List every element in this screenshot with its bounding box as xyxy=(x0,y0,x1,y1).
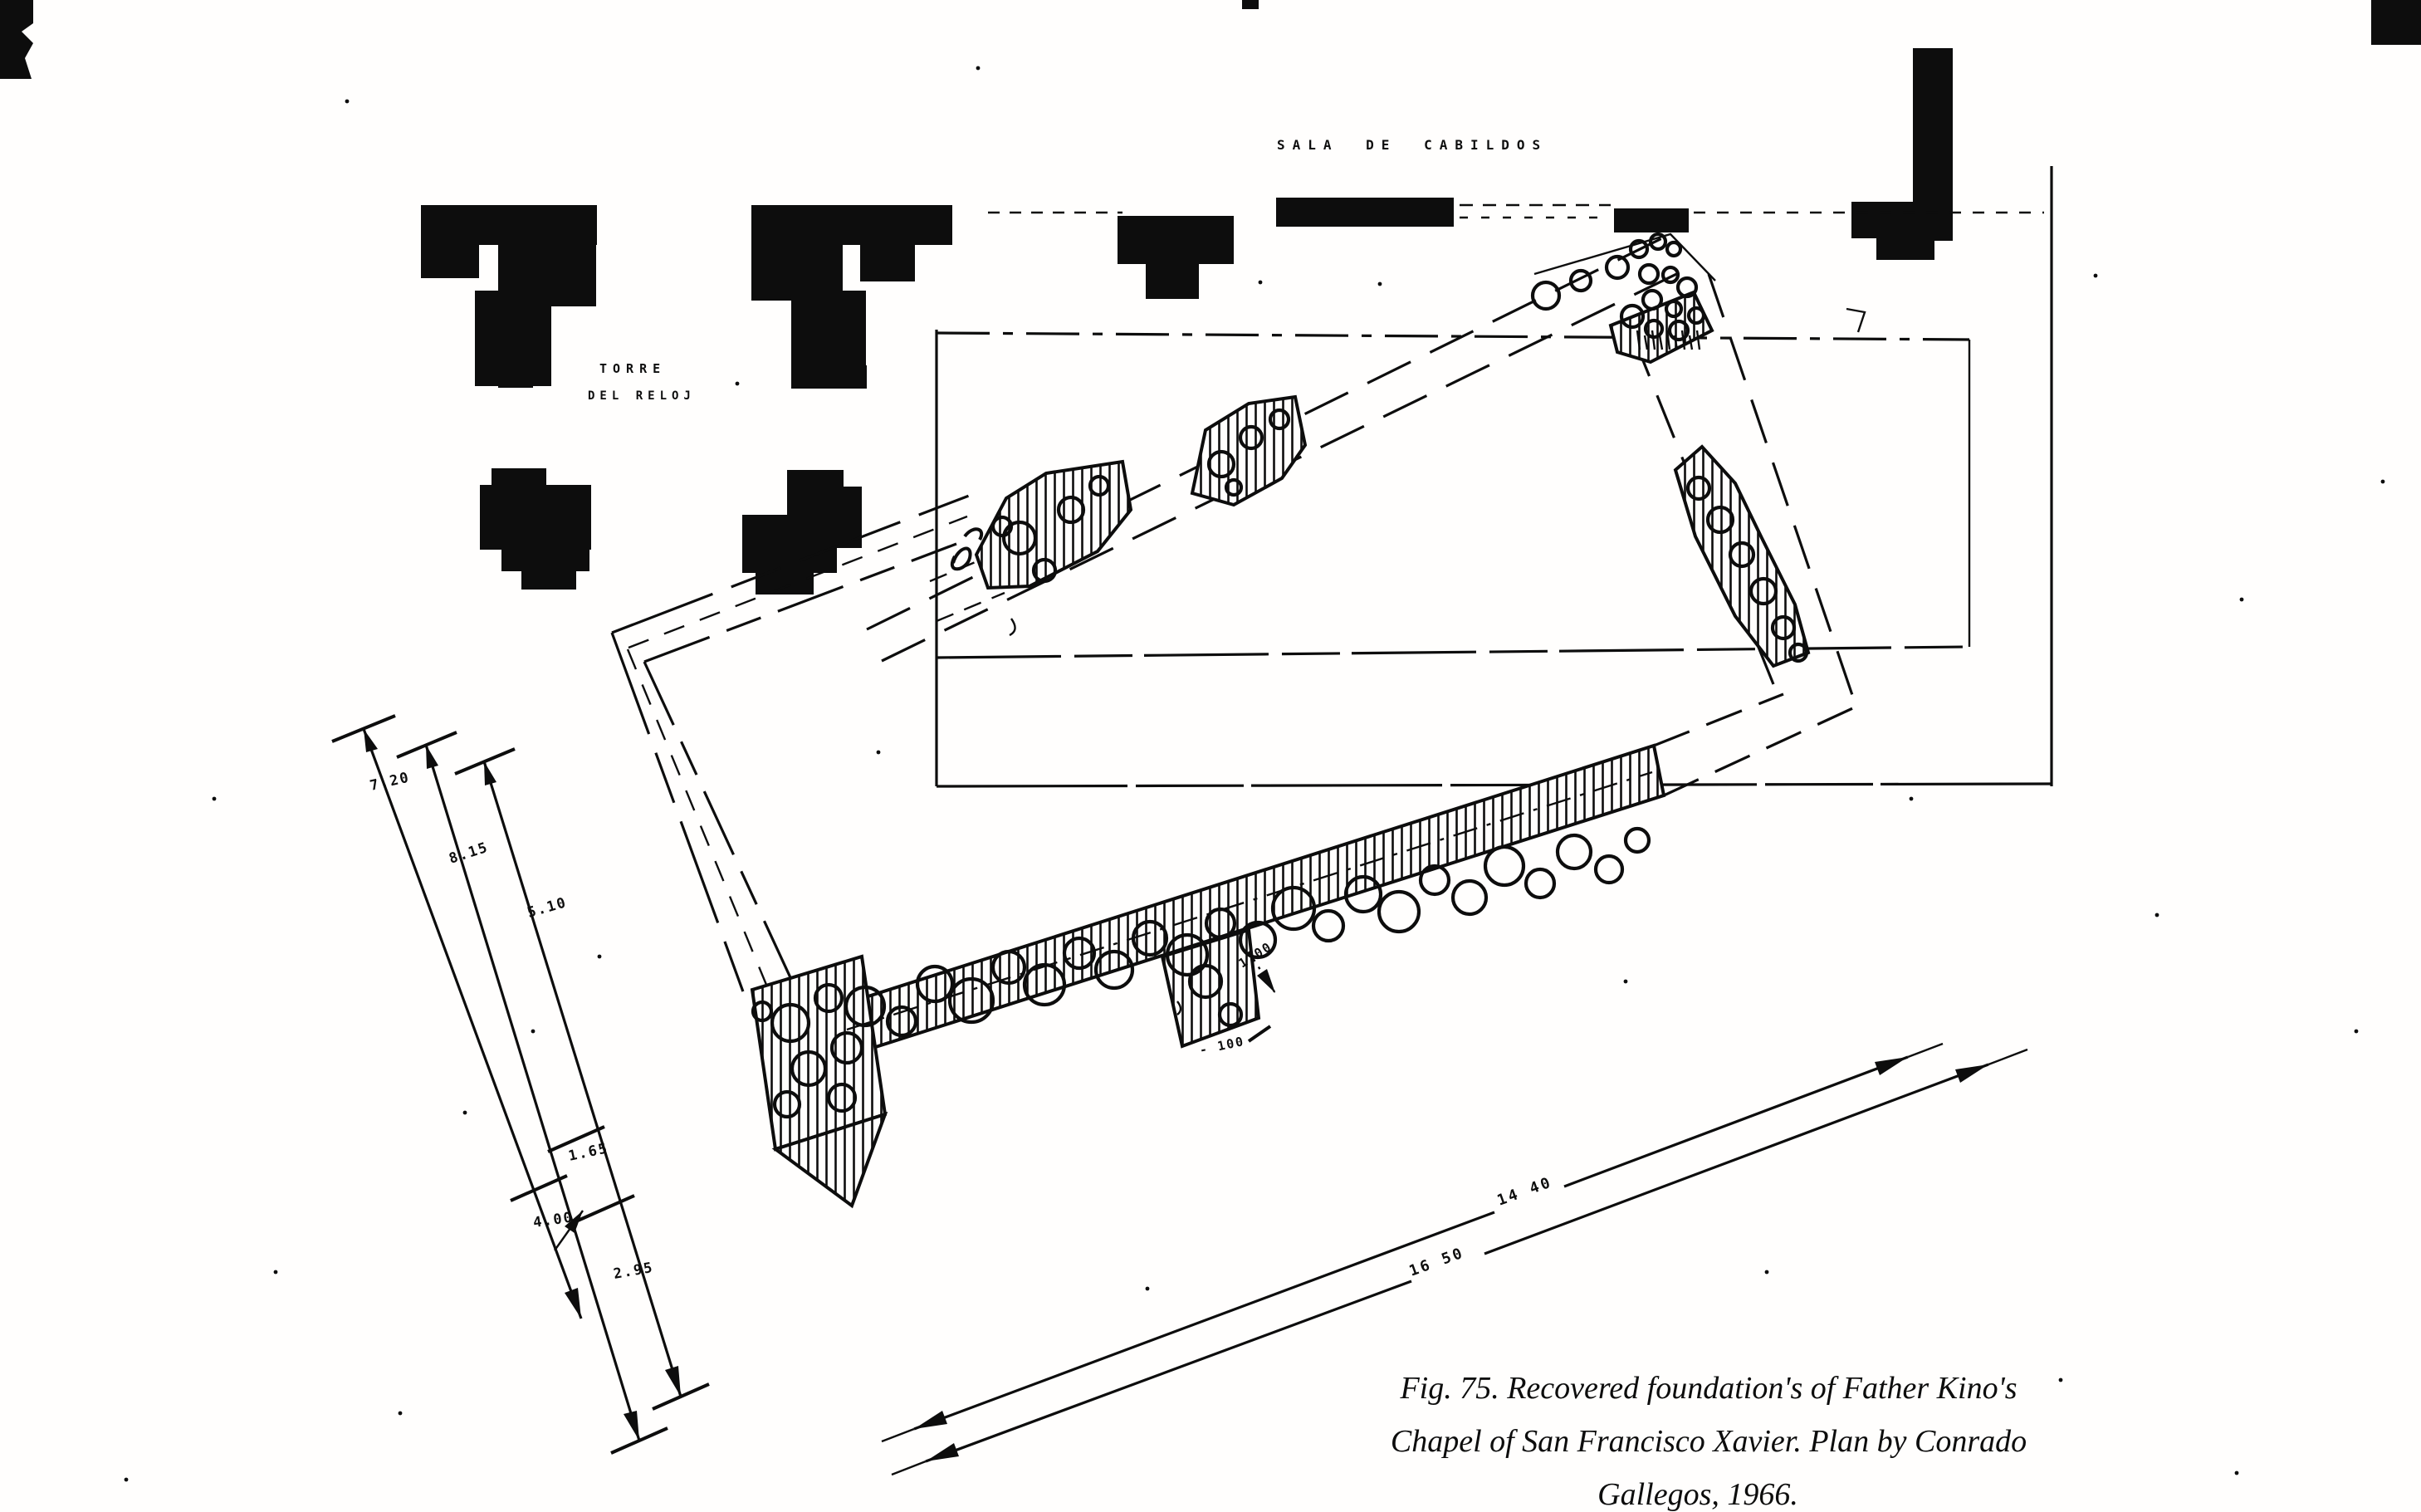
torre-label: TORRE xyxy=(599,361,666,376)
foundation-stone xyxy=(1453,881,1486,914)
paper-noise-dots xyxy=(125,66,2385,1482)
noise-dot xyxy=(399,1412,403,1416)
noise-dot xyxy=(2240,598,2244,602)
dimension-label: 1.65 xyxy=(567,1140,610,1165)
noise-dot xyxy=(736,382,740,386)
sala-de-cabildos-label: SALA DE CABILDOS xyxy=(1277,137,1548,153)
plan-text-labels: SALA DE CABILDOS TORRE DEL RELOJ xyxy=(588,137,1548,403)
dimension-label: 16 50 xyxy=(1407,1244,1467,1280)
foundation-stone xyxy=(1313,911,1343,941)
noise-dot xyxy=(2155,913,2159,917)
caption-line-3: Gallegos, 1966. xyxy=(1597,1477,1798,1512)
foundation-stone xyxy=(1643,291,1661,309)
noise-dot xyxy=(2059,1378,2063,1382)
foundation-stone xyxy=(1379,892,1419,932)
noise-dot xyxy=(1378,282,1382,286)
foundation-stone xyxy=(1558,835,1591,869)
dimension-label: 5.10 xyxy=(526,894,570,922)
site-plan-figure: 7.20 8.15 5.10 1.65 4.00 2.95 14 40 16 5… xyxy=(0,0,2421,1512)
dimension-label: 2.95 xyxy=(612,1260,655,1283)
noise-dot xyxy=(1146,1287,1150,1291)
noise-dot xyxy=(125,1478,129,1482)
dimension-label: 7.20 xyxy=(369,769,412,794)
small-tick-mark xyxy=(1846,309,1865,332)
noise-dot xyxy=(1259,281,1263,285)
chapel-foundation-plan xyxy=(752,234,1865,1206)
small-hook-mark xyxy=(1010,619,1015,635)
foundation-stone xyxy=(1526,869,1554,898)
noise-dot xyxy=(598,955,602,959)
noise-dot xyxy=(1765,1270,1769,1275)
foundation-stone xyxy=(1667,242,1680,256)
noise-dot xyxy=(345,100,350,104)
del-reloj-label: DEL RELOJ xyxy=(588,389,696,403)
dimension-label: 14 40 xyxy=(1495,1173,1555,1209)
noise-dot xyxy=(463,1111,467,1115)
figure-caption: Fig. 75. Recovered foundation's of Fathe… xyxy=(1391,1371,2027,1512)
noise-dot xyxy=(2235,1471,2239,1475)
foundation-stone xyxy=(1596,856,1622,883)
noise-dot xyxy=(274,1270,278,1275)
noise-dot xyxy=(976,66,981,71)
noise-dot xyxy=(531,1030,536,1034)
noise-dot xyxy=(1910,797,1914,801)
foundation-stone xyxy=(1485,847,1524,885)
foundation-stone xyxy=(1533,282,1559,309)
noise-dot xyxy=(1624,980,1628,984)
break-squiggle xyxy=(952,529,981,569)
foundation-stone xyxy=(1626,829,1649,852)
caption-line-2: Chapel of San Francisco Xavier. Plan by … xyxy=(1391,1424,2027,1459)
noise-dot xyxy=(2094,274,2098,278)
dimension-fan: 7.20 8.15 5.10 1.65 4.00 2.95 xyxy=(332,716,709,1453)
noise-dot xyxy=(213,797,217,801)
bottom-dimension-lines: 14 40 16 50 xyxy=(882,1044,2027,1475)
noise-dot xyxy=(2381,480,2385,484)
noise-dot xyxy=(877,751,881,755)
noise-dot xyxy=(2355,1030,2359,1034)
dimension-label: 8.15 xyxy=(447,839,491,868)
foundation-stone xyxy=(1640,265,1658,283)
foundation-stone xyxy=(1607,257,1628,278)
scanned-figure-page: 7.20 8.15 5.10 1.65 4.00 2.95 14 40 16 5… xyxy=(0,0,2421,1512)
caption-line-1: Fig. 75. Recovered foundation's of Fathe… xyxy=(1399,1371,2017,1406)
